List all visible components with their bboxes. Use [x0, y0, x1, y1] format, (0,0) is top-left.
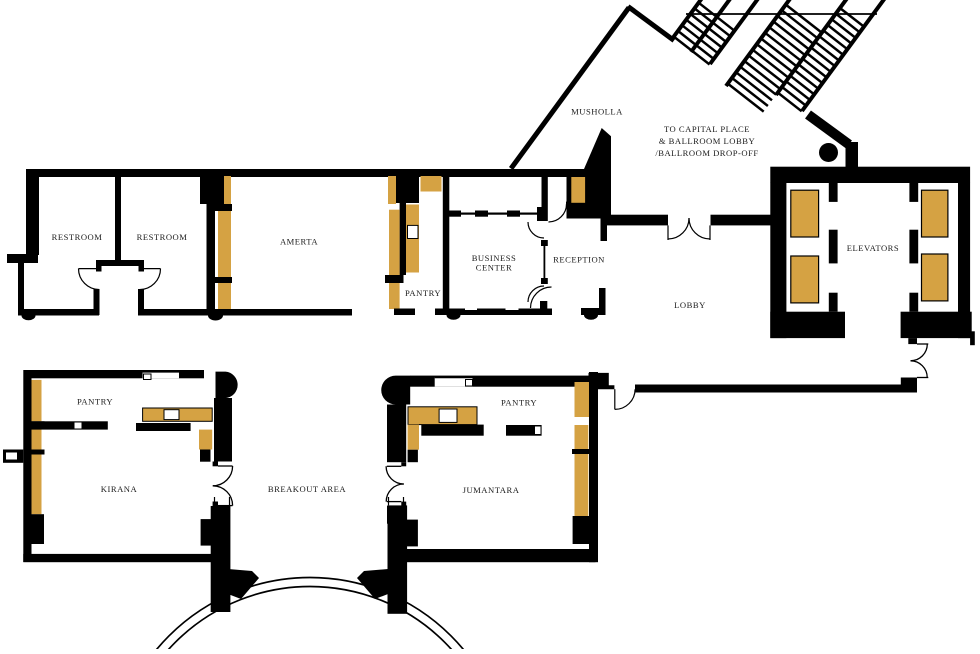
- svg-text:RESTROOM: RESTROOM: [52, 232, 103, 242]
- svg-text:MUSHOLLA: MUSHOLLA: [571, 107, 623, 117]
- svg-text:LOBBY: LOBBY: [674, 300, 706, 310]
- svg-text:CENTER: CENTER: [476, 263, 512, 273]
- svg-text:PANTRY: PANTRY: [501, 398, 537, 408]
- svg-text:ELEVATORS: ELEVATORS: [847, 243, 899, 253]
- svg-text:BUSINESS: BUSINESS: [472, 253, 517, 263]
- svg-text:TO CAPITAL PLACE: TO CAPITAL PLACE: [664, 124, 750, 134]
- svg-text:BREAKOUT AREA: BREAKOUT AREA: [268, 484, 346, 494]
- svg-text:RESTROOM: RESTROOM: [137, 232, 188, 242]
- svg-text:KIRANA: KIRANA: [101, 484, 138, 494]
- svg-text:AMERTA: AMERTA: [280, 237, 318, 247]
- svg-text:JUMANTARA: JUMANTARA: [463, 485, 520, 495]
- svg-text:RECEPTION: RECEPTION: [553, 255, 605, 265]
- svg-text:PANTRY: PANTRY: [405, 288, 441, 298]
- svg-text:PANTRY: PANTRY: [77, 397, 113, 407]
- svg-text:& BALLROOM LOBBY: & BALLROOM LOBBY: [659, 136, 755, 146]
- svg-text:/BALLROOM DROP-OFF: /BALLROOM DROP-OFF: [655, 148, 758, 158]
